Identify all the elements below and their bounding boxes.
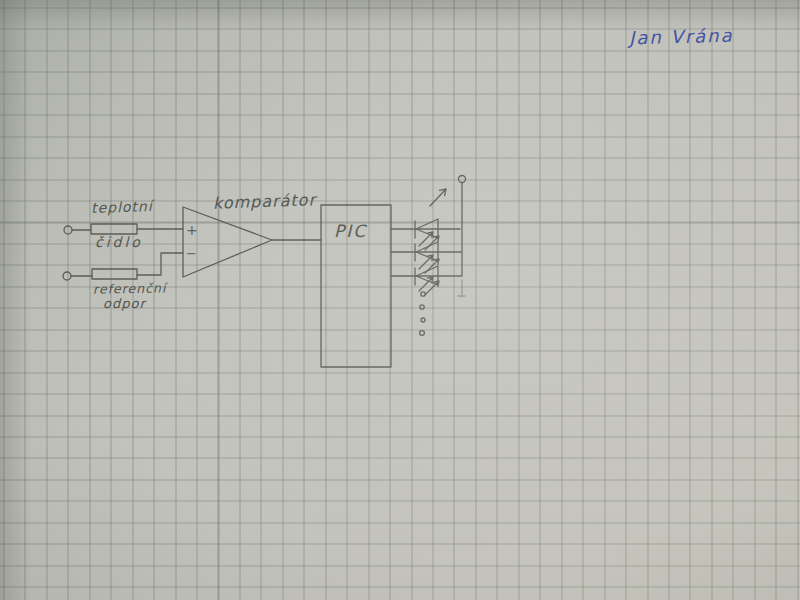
input-terminal-1-icon [64,226,72,234]
supply-terminal-icon [458,176,466,298]
label-temperature-sensor-line2: čidlo [95,234,143,250]
label-pic-mcu: PIC [334,221,367,241]
label-reference-resistor-line2: odpor [103,296,146,311]
comparator-minus-input: − [186,246,197,261]
led-light-arrow-icon [430,189,446,206]
led-3-icon [415,266,439,295]
reference-resistor-icon [71,253,183,279]
author-signature: Jan Vrána [629,25,734,49]
continuation-dots-icon [420,292,426,336]
input-terminal-2-icon [63,272,71,280]
led-2-icon [415,242,439,273]
label-comparator: komparátor [213,190,317,213]
label-reference-resistor-line1: referenční [93,280,167,296]
temperature-sensor-resistor-icon [72,224,183,234]
led-1-icon [415,219,439,250]
pic-output-wires [391,229,461,276]
label-temperature-sensor-line1: teplotní [91,198,153,216]
graph-paper-photo: + − [0,0,800,600]
comparator-opamp-icon: + − [183,207,321,277]
comparator-plus-input: + [186,222,198,238]
